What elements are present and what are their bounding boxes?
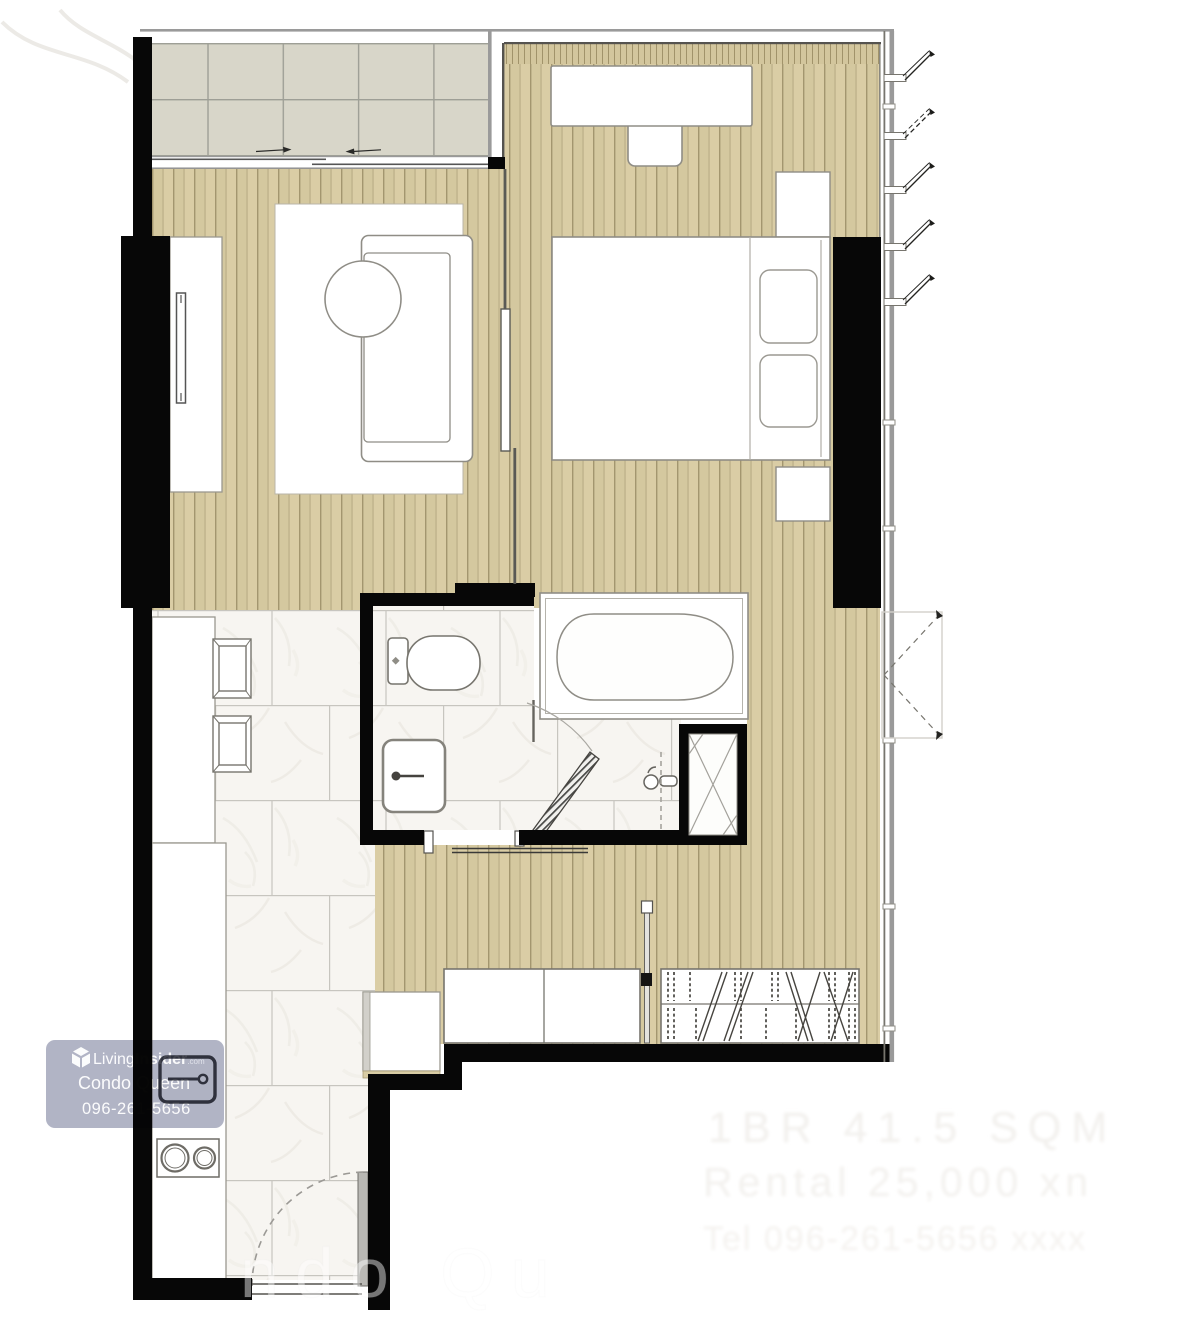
svg-text:096-261-5656: 096-261-5656 <box>82 1100 191 1118</box>
svg-text:1BR 41.5 SQM: 1BR 41.5 SQM <box>708 1104 1117 1152</box>
svg-text:ndo Qu: ndo Qu <box>240 1234 566 1312</box>
svg-text:Rental 25,000 xn: Rental 25,000 xn <box>703 1159 1093 1205</box>
svg-text:Condo Queen: Condo Queen <box>78 1073 190 1093</box>
svg-text:Tel 096-261-5656 xxxx: Tel 096-261-5656 xxxx <box>703 1220 1087 1258</box>
